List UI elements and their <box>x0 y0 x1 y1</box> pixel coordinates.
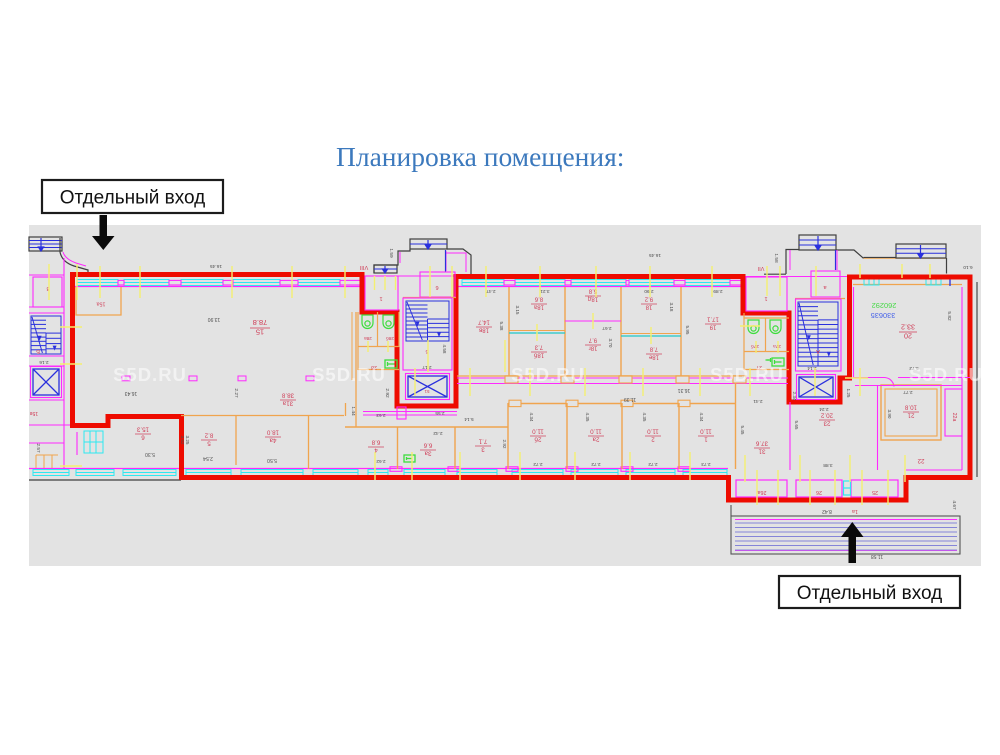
svg-text:4.35: 4.35 <box>585 413 590 422</box>
svg-text:38.8: 38.8 <box>281 391 294 398</box>
svg-text:28в: 28в <box>364 336 372 341</box>
svg-text:1.25: 1.25 <box>846 389 851 398</box>
svg-text:2.24: 2.24 <box>819 406 829 412</box>
svg-text:4.58: 4.58 <box>442 345 447 354</box>
svg-text:260292: 260292 <box>872 301 897 310</box>
svg-text:3.15: 3.15 <box>515 306 520 315</box>
svg-text:2.77: 2.77 <box>903 389 913 395</box>
svg-text:3.88: 3.88 <box>823 462 833 468</box>
svg-text:2.42: 2.42 <box>433 430 443 436</box>
svg-text:8.6: 8.6 <box>534 296 543 302</box>
svg-text:2.92: 2.92 <box>502 440 507 449</box>
svg-text:2.17: 2.17 <box>422 364 432 370</box>
svg-text:1.44: 1.44 <box>350 406 356 416</box>
svg-text:10.8: 10.8 <box>904 403 917 410</box>
svg-text:6: 6 <box>141 434 145 441</box>
svg-text:11.39: 11.39 <box>624 396 636 402</box>
svg-text:S5D.RU: S5D.RU <box>312 364 386 385</box>
svg-text:2.72: 2.72 <box>648 461 658 467</box>
svg-text:2.89: 2.89 <box>713 288 723 294</box>
svg-text:28б: 28б <box>386 336 394 341</box>
svg-text:Планировка помещения:: Планировка помещения: <box>336 141 624 172</box>
svg-text:5.14: 5.14 <box>464 416 474 422</box>
svg-text:А: А <box>816 348 820 354</box>
svg-text:S5D.RU: S5D.RU <box>710 364 784 385</box>
svg-text:2.62: 2.62 <box>376 458 386 464</box>
svg-text:VII: VII <box>757 265 764 271</box>
svg-text:2.16: 2.16 <box>39 359 49 365</box>
svg-text:2.55: 2.55 <box>435 410 445 416</box>
svg-text:27а: 27а <box>773 344 781 349</box>
svg-text:3.18: 3.18 <box>669 303 674 312</box>
svg-text:18.0: 18.0 <box>266 428 279 435</box>
svg-text:2.27: 2.27 <box>233 388 239 398</box>
svg-text:26: 26 <box>816 489 822 495</box>
svg-text:78.8: 78.8 <box>253 318 268 327</box>
svg-text:S5D.RU: S5D.RU <box>511 364 585 385</box>
svg-text:6.6: 6.6 <box>423 441 432 448</box>
svg-text:9.2: 9.2 <box>644 296 653 302</box>
svg-text:Отдельный вход: Отдельный вход <box>60 188 206 209</box>
svg-text:20.2: 20.2 <box>820 411 833 418</box>
svg-text:18: 18 <box>645 304 652 310</box>
svg-text:Б: Б <box>36 348 40 354</box>
svg-text:18е: 18е <box>648 354 659 360</box>
svg-text:6: 6 <box>435 284 438 290</box>
svg-text:11.58: 11.58 <box>871 553 883 559</box>
svg-text:13.90: 13.90 <box>208 316 221 322</box>
svg-text:VIII: VIII <box>359 264 368 270</box>
svg-text:5.50: 5.50 <box>267 457 277 463</box>
svg-text:19: 19 <box>709 324 716 330</box>
svg-text:22: 22 <box>917 457 924 464</box>
svg-text:16.31: 16.31 <box>678 387 691 393</box>
svg-text:5.38: 5.38 <box>499 322 504 331</box>
svg-text:2.47: 2.47 <box>486 288 496 294</box>
svg-text:2б: 2б <box>534 436 541 443</box>
svg-text:1.59: 1.59 <box>388 248 394 258</box>
svg-text:18в: 18в <box>479 327 489 333</box>
svg-text:2.90: 2.90 <box>644 288 654 294</box>
svg-text:18г: 18г <box>588 345 598 351</box>
svg-text:4.35: 4.35 <box>642 413 647 422</box>
svg-text:20: 20 <box>904 332 912 341</box>
svg-text:9.7: 9.7 <box>588 337 597 343</box>
svg-text:15а: 15а <box>97 301 106 307</box>
svg-text:2.34: 2.34 <box>792 392 797 401</box>
svg-text:8.42: 8.42 <box>822 508 832 514</box>
svg-text:4.67: 4.67 <box>951 500 957 510</box>
svg-text:2а: 2а <box>592 436 599 443</box>
svg-text:1.58: 1.58 <box>773 253 779 263</box>
svg-text:21: 21 <box>907 412 914 419</box>
svg-text:2.72: 2.72 <box>591 461 601 467</box>
svg-text:S5D.RU: S5D.RU <box>909 364 983 385</box>
svg-text:11.0: 11.0 <box>532 427 544 434</box>
svg-text:5.30: 5.30 <box>145 451 155 457</box>
svg-text:31: 31 <box>758 448 765 455</box>
svg-text:37.6: 37.6 <box>755 439 768 446</box>
svg-text:25: 25 <box>872 489 878 495</box>
svg-text:33.2: 33.2 <box>901 322 915 331</box>
svg-text:2.73: 2.73 <box>701 461 711 467</box>
svg-text:1: 1 <box>379 295 382 301</box>
svg-text:2.63: 2.63 <box>376 412 386 418</box>
svg-text:5.95: 5.95 <box>685 326 690 335</box>
svg-text:5.45: 5.45 <box>740 426 745 435</box>
svg-text:3: 3 <box>481 446 485 453</box>
svg-text:26а: 26а <box>758 489 767 495</box>
svg-text:1: 1 <box>704 436 708 443</box>
svg-text:4.34: 4.34 <box>529 413 534 422</box>
svg-text:2: 2 <box>651 436 655 443</box>
svg-text:22а: 22а <box>951 413 957 422</box>
svg-text:27б: 27б <box>751 344 759 349</box>
svg-text:7.8: 7.8 <box>649 346 658 352</box>
svg-text:15.3: 15.3 <box>136 425 149 432</box>
svg-text:5.82: 5.82 <box>946 311 952 321</box>
svg-text:6.10: 6.10 <box>963 264 973 270</box>
svg-text:2.54: 2.54 <box>203 455 213 461</box>
svg-text:2.92: 2.92 <box>384 388 390 398</box>
svg-text:8.2: 8.2 <box>204 431 213 438</box>
svg-text:23: 23 <box>823 420 830 427</box>
svg-text:15в: 15в <box>30 410 39 416</box>
svg-text:330635: 330635 <box>871 311 896 320</box>
svg-text:3.90: 3.90 <box>887 410 892 419</box>
svg-text:2.41: 2.41 <box>753 398 763 404</box>
svg-text:18а: 18а <box>533 304 544 310</box>
svg-text:51: 51 <box>424 389 429 394</box>
svg-text:11.0: 11.0 <box>590 427 602 434</box>
svg-text:18б: 18б <box>533 352 544 358</box>
svg-text:14.7: 14.7 <box>478 319 490 325</box>
svg-text:3.21: 3.21 <box>540 288 550 294</box>
svg-text:17.1: 17.1 <box>707 316 719 322</box>
svg-text:2.57: 2.57 <box>35 443 41 453</box>
svg-text:5: 5 <box>207 440 211 447</box>
svg-text:3.62: 3.62 <box>180 436 185 445</box>
svg-text:1а: 1а <box>852 508 858 514</box>
svg-text:16.43: 16.43 <box>125 390 138 396</box>
svg-text:15: 15 <box>256 328 264 337</box>
svg-text:7.3: 7.3 <box>534 344 543 350</box>
svg-text:31а: 31а <box>282 400 293 407</box>
svg-text:2.67: 2.67 <box>602 325 612 331</box>
svg-text:Отдельный вход: Отдельный вход <box>797 583 943 604</box>
svg-text:7.1: 7.1 <box>478 437 487 444</box>
svg-text:S5D.RU: S5D.RU <box>113 364 187 385</box>
svg-text:16.45: 16.45 <box>210 263 222 269</box>
svg-text:11.0: 11.0 <box>700 427 712 434</box>
svg-text:3.70: 3.70 <box>608 339 613 348</box>
svg-text:3а: 3а <box>424 450 431 457</box>
svg-text:6.8: 6.8 <box>371 438 380 445</box>
svg-text:16.45: 16.45 <box>649 252 661 258</box>
svg-text:4а: 4а <box>269 437 276 444</box>
svg-text:2.72: 2.72 <box>533 461 543 467</box>
svg-text:11.0: 11.0 <box>647 427 659 434</box>
svg-text:5.65: 5.65 <box>794 421 799 430</box>
svg-text:4.34: 4.34 <box>699 413 704 422</box>
